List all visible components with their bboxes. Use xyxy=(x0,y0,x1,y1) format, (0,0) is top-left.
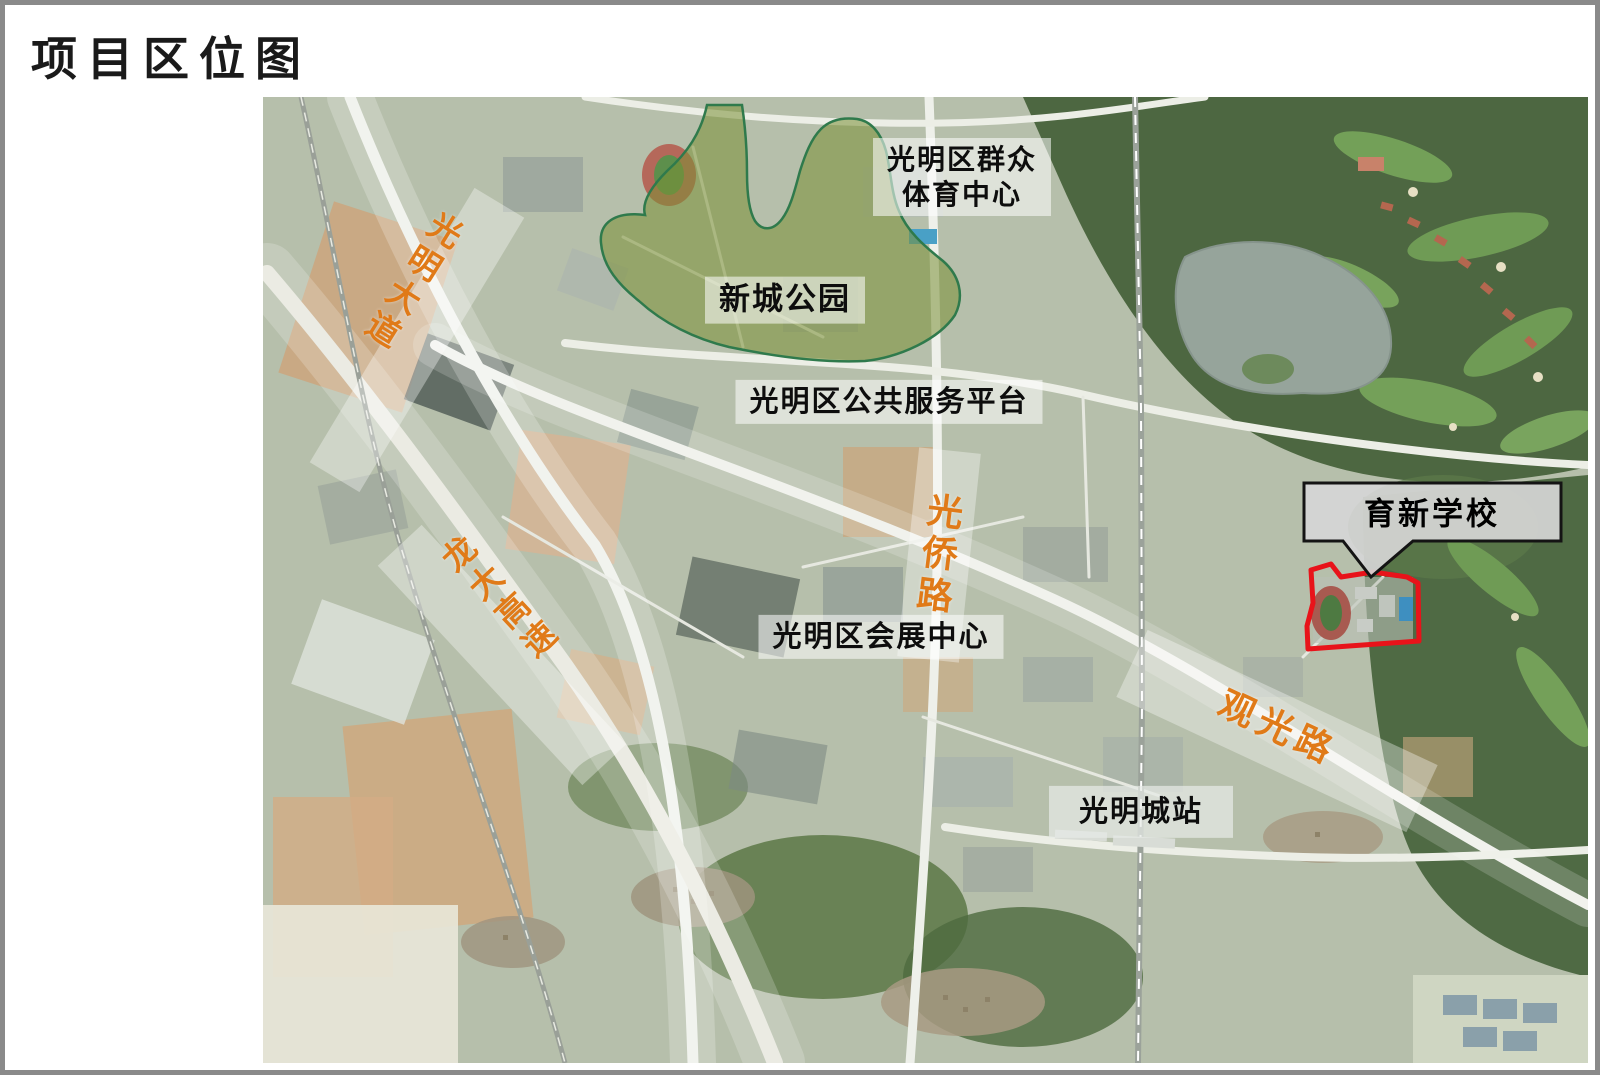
lake-island xyxy=(1242,354,1294,384)
school-site-detail xyxy=(1311,577,1413,643)
page-title: 项目区位图 xyxy=(31,23,311,89)
greenhouse-area xyxy=(263,905,458,1063)
satellite-map xyxy=(263,97,1588,1063)
slide-page: 项目区位图 xyxy=(0,0,1600,1075)
location-map: 光明区群众 体育中心 新城公园 光明区公共服务平台 光明区会展中心 光明城站 光… xyxy=(263,97,1588,1063)
